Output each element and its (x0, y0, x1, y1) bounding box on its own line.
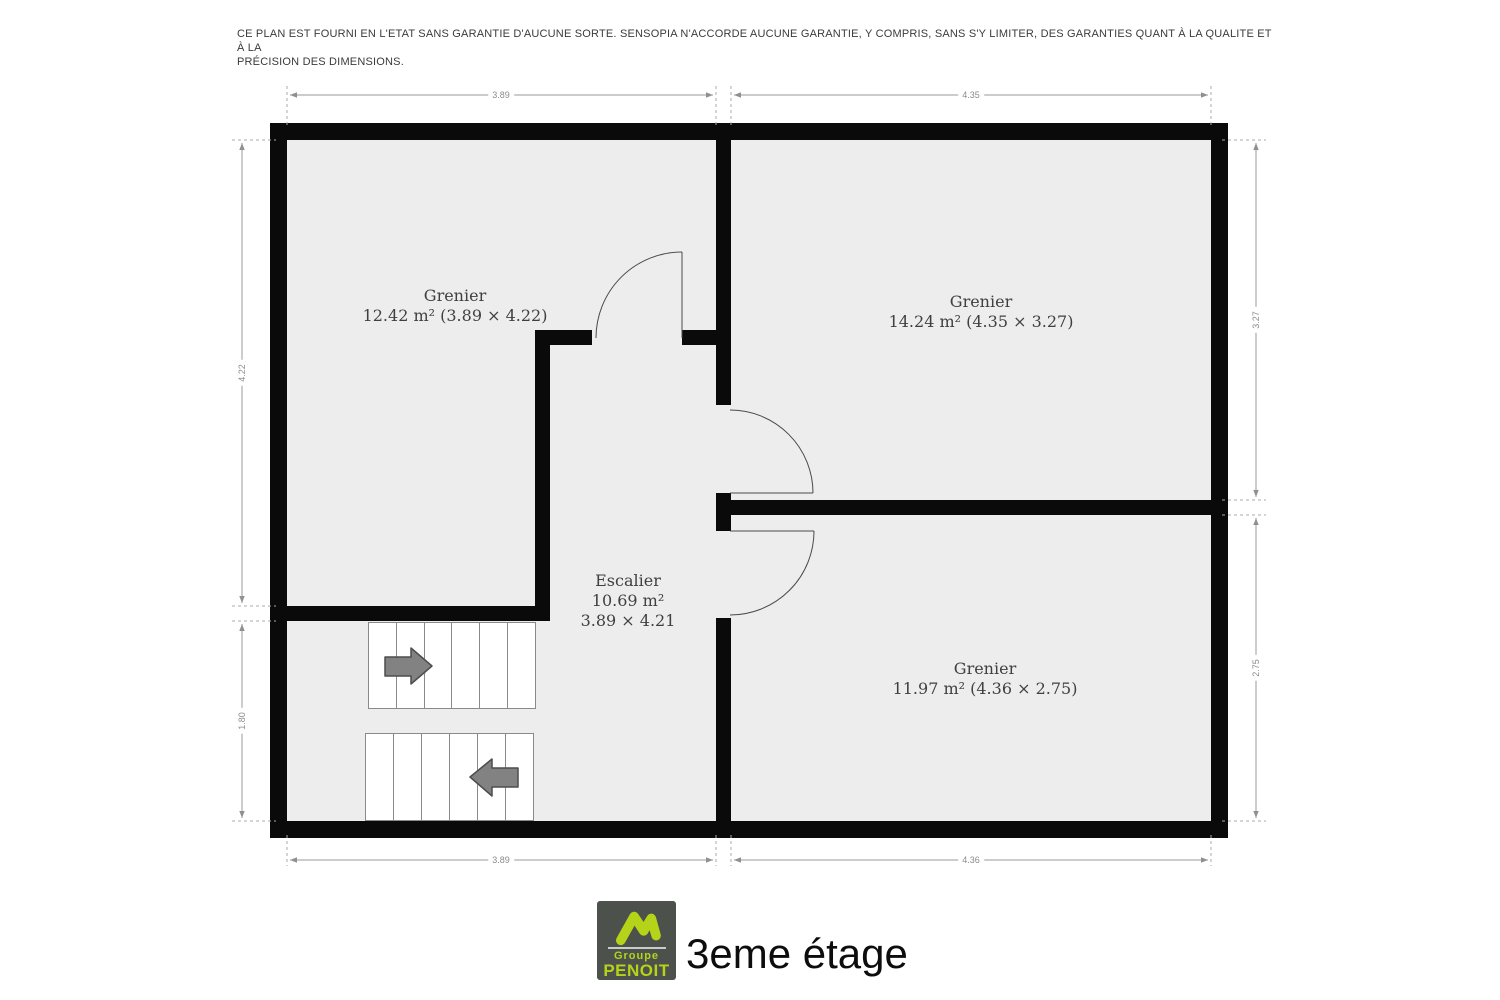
stair-tread (452, 623, 480, 708)
stair-tread (480, 623, 508, 708)
disclaimer-line-1: CE PLAN EST FOURNI EN L'ETAT SANS GARANT… (237, 27, 1277, 55)
stair-tread (366, 734, 394, 820)
wall-nook-vertical (535, 330, 550, 621)
dim-label-top-right: 4.35 (958, 89, 984, 101)
stair-tread (506, 734, 533, 820)
logo-divider (608, 947, 666, 949)
stair-tread (369, 623, 397, 708)
wall-center-top (716, 140, 731, 405)
room-name: Grenier (363, 286, 548, 306)
room-label-grenier-se: Grenier 11.97 m² (4.36 × 2.75) (893, 659, 1078, 699)
room-name: Escalier (581, 571, 676, 591)
room-details: 14.24 m² (4.35 × 3.27) (889, 312, 1074, 332)
dim-label-left-lower: 1.80 (236, 708, 248, 734)
room-label-grenier-ne: Grenier 14.24 m² (4.35 × 3.27) (889, 292, 1074, 332)
room-label-grenier-nw: Grenier 12.42 m² (3.89 × 4.22) (363, 286, 548, 326)
wall-center-stub (716, 493, 731, 531)
dim-label-top-left: 3.89 (488, 89, 514, 101)
wall-nook-right (682, 330, 716, 345)
staircase-upper-flight (368, 622, 536, 709)
room-name: Grenier (889, 292, 1074, 312)
groupe-penoit-logo: Groupe PENOIT (597, 901, 676, 980)
room-name: Grenier (893, 659, 1078, 679)
dim-label-right-upper: 3.27 (1250, 307, 1262, 333)
stair-tread (478, 734, 506, 820)
stair-tread (425, 623, 453, 708)
disclaimer-text: CE PLAN EST FOURNI EN L'ETAT SANS GARANT… (237, 27, 1277, 69)
mountain-roof-icon (611, 906, 663, 946)
logo-penoit-text: PENOIT (603, 962, 669, 980)
stair-tread (397, 623, 425, 708)
dim-label-left-upper: 4.22 (236, 360, 248, 386)
room-details: 11.97 m² (4.36 × 2.75) (893, 679, 1078, 699)
stair-tread (450, 734, 478, 820)
stair-tread (394, 734, 422, 820)
dim-label-bottom-right: 4.36 (958, 854, 984, 866)
stair-tread (508, 623, 535, 708)
wall-right-horizontal (731, 500, 1211, 515)
dim-label-right-lower: 2.75 (1250, 655, 1262, 681)
floor-plan: Grenier 12.42 m² (3.89 × 4.22) Grenier 1… (270, 123, 1228, 838)
dim-label-bottom-left: 3.89 (488, 854, 514, 866)
room-label-escalier: Escalier 10.69 m² 3.89 × 4.21 (581, 571, 676, 631)
stair-tread (422, 734, 450, 820)
wall-grenier-nw-bottom (287, 606, 550, 621)
staircase-lower-flight (365, 733, 534, 821)
room-area: 10.69 m² (581, 591, 676, 611)
room-size: 3.89 × 4.21 (581, 611, 676, 631)
room-details: 12.42 m² (3.89 × 4.22) (363, 306, 548, 326)
footer: Groupe PENOIT 3eme étage (597, 901, 908, 980)
wall-center-bottom (716, 618, 731, 821)
floor-title: 3eme étage (686, 930, 908, 978)
disclaimer-line-2: PRÉCISION DES DIMENSIONS. (237, 55, 1277, 69)
